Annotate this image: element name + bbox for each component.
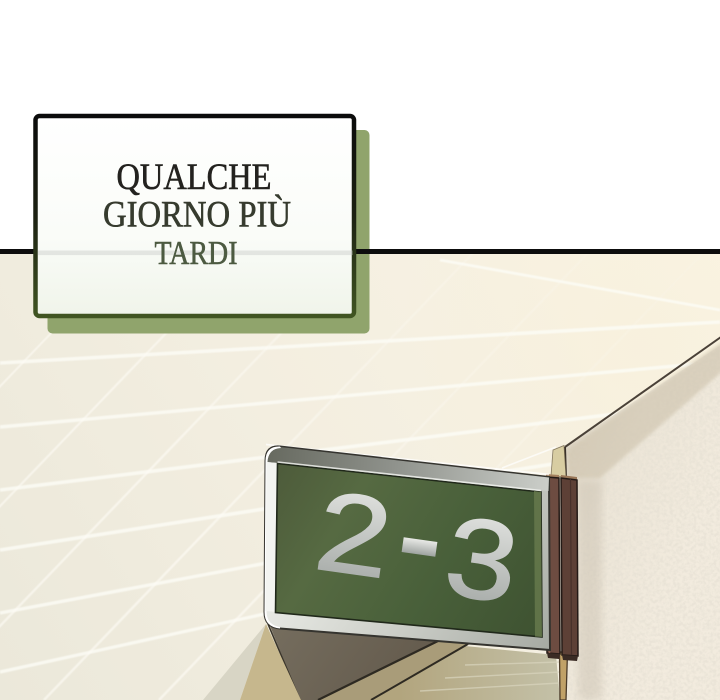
svg-text:QUALCHE: QUALCHE	[117, 157, 272, 198]
svg-text:GIORNO PIÙ: GIORNO PIÙ	[103, 194, 291, 236]
svg-text:TARDI: TARDI	[155, 235, 238, 272]
